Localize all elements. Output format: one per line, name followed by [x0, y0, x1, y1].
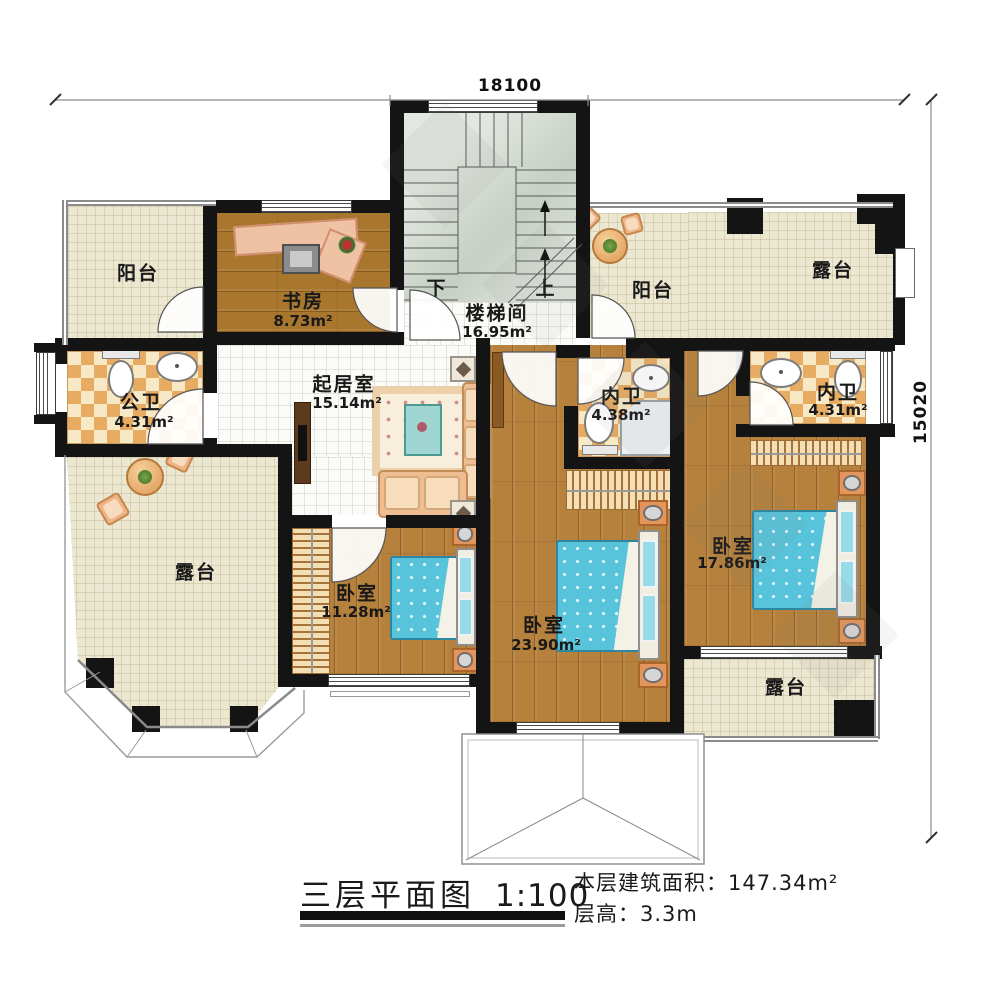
sliding-door: [700, 646, 848, 659]
wall: [564, 457, 684, 469]
column: [86, 658, 114, 688]
room-label-living: 起居室: [312, 370, 375, 397]
room-label-bath-mid: 内卫: [601, 382, 643, 409]
balcony-table: [592, 228, 628, 264]
wall: [203, 200, 217, 345]
wall: [476, 722, 518, 736]
stair-down-label: 下: [426, 274, 447, 301]
wall: [576, 100, 590, 338]
room-area-bath-mid: 4.38m²: [591, 406, 650, 424]
wall: [390, 332, 404, 345]
sink: [156, 352, 198, 382]
wall: [736, 351, 750, 396]
room-label-balcony-tl: 阳台: [117, 259, 159, 286]
nightstand: [638, 662, 668, 688]
wall: [290, 515, 332, 528]
room-area-bedroom-e: 17.86m²: [697, 554, 767, 572]
terrace-railing: [684, 736, 878, 742]
window: [428, 100, 538, 113]
window-bay: [895, 248, 915, 298]
room-label-study: 书房: [282, 287, 324, 314]
wall: [55, 338, 215, 351]
door-leaf: [492, 352, 504, 428]
wall: [278, 674, 330, 687]
room-area-stairwell: 16.95m²: [462, 323, 532, 341]
room-label-bedroom-sw: 卧室: [336, 579, 378, 606]
wall: [536, 100, 590, 113]
title-underline: [300, 911, 565, 920]
pillow: [641, 594, 657, 642]
wall: [390, 100, 430, 113]
dimension-top: 18100: [478, 76, 542, 96]
pillow: [839, 560, 855, 604]
floor-height-line: 层高：3.3m: [574, 899, 838, 930]
nightstand: [838, 618, 866, 644]
room-label-balcony-top: 阳台: [632, 276, 674, 303]
coffee-table: [404, 404, 442, 456]
room-area-bath-right: 4.31m²: [808, 401, 867, 419]
wall: [386, 515, 478, 528]
balcony-railing: [62, 200, 68, 345]
room-area-living: 15.14m²: [312, 394, 382, 412]
window-sill: [330, 691, 470, 697]
bed-sw: [390, 556, 458, 640]
dimension-right: 15020: [911, 380, 931, 444]
floor-area-line: 本层建筑面积：147.34m²: [574, 868, 838, 899]
room-area-bedroom-s: 23.90m²: [511, 636, 581, 654]
title-underline-thin: [300, 924, 565, 927]
floor-area-label: 本层建筑面积：: [574, 871, 728, 895]
room-label-terrace-tr: 露台: [812, 256, 854, 283]
toilet-tank: [582, 445, 618, 455]
floor-plan: 阳台 书房 8.73m² 楼梯间 16.95m² 下 上 阳台 露台 公卫 4.…: [0, 0, 1000, 990]
pillow: [839, 510, 855, 554]
room-label-terrace-br: 露台: [765, 673, 807, 700]
wall: [476, 338, 490, 736]
wall: [390, 100, 404, 290]
wall: [55, 444, 292, 457]
wall: [556, 345, 590, 358]
wall: [203, 438, 217, 457]
room-label-terrace-left: 露台: [175, 558, 217, 585]
column: [132, 706, 160, 732]
pillow: [641, 540, 657, 588]
wall: [626, 345, 670, 358]
column: [230, 706, 258, 732]
wall: [205, 332, 390, 345]
terrace-table: [126, 458, 164, 496]
side-table: [450, 356, 476, 382]
nightstand: [638, 500, 668, 526]
nightstand: [838, 470, 866, 496]
wall: [682, 646, 700, 659]
room-label-stairwell: 楼梯间: [465, 299, 528, 326]
wall: [278, 444, 292, 687]
window: [328, 674, 470, 687]
room-area-bedroom-sw: 11.28m²: [321, 603, 391, 621]
room-area-study: 8.73m²: [273, 312, 332, 330]
terrace-tr-floor: [688, 212, 893, 338]
stair-up-label: 上: [535, 274, 556, 301]
wall: [34, 415, 58, 424]
balcony-railing: [62, 200, 216, 206]
wardrobe-bedroom-e: [750, 440, 862, 466]
bay-window: [36, 352, 56, 415]
wall: [866, 424, 880, 659]
wall: [670, 338, 684, 736]
plan-info: 本层建筑面积：147.34m² 层高：3.3m: [574, 868, 838, 930]
room-label-bedroom-s: 卧室: [523, 611, 565, 638]
wall: [34, 343, 58, 352]
window: [516, 722, 620, 736]
sink: [760, 358, 802, 388]
pillow: [458, 598, 473, 636]
floor-area-value: 147.34m²: [728, 871, 838, 895]
nightstand: [452, 648, 478, 672]
wall: [203, 338, 217, 393]
computer-monitor: [282, 244, 320, 274]
pillow: [458, 556, 473, 594]
wardrobe-bedroom-sw: [292, 528, 330, 674]
terrace-railing: [874, 655, 880, 739]
wall: [564, 406, 578, 457]
room-area-bath-public: 4.31m²: [114, 413, 173, 431]
floor-height-value: 3.3m: [640, 902, 698, 926]
plan-title: 三层平面图: [300, 870, 475, 915]
room-label-bath-public: 公卫: [120, 388, 162, 415]
study-plant: [338, 236, 356, 254]
window: [880, 351, 893, 424]
tv-cabinet: [294, 402, 311, 484]
title-block: 三层平面图 1:100: [300, 870, 589, 915]
column: [834, 700, 878, 737]
terrace-railing: [590, 202, 893, 208]
floor-height-label: 层高：: [574, 902, 640, 926]
wall: [350, 200, 394, 213]
window: [261, 200, 352, 213]
sofa-cushion: [384, 476, 420, 510]
